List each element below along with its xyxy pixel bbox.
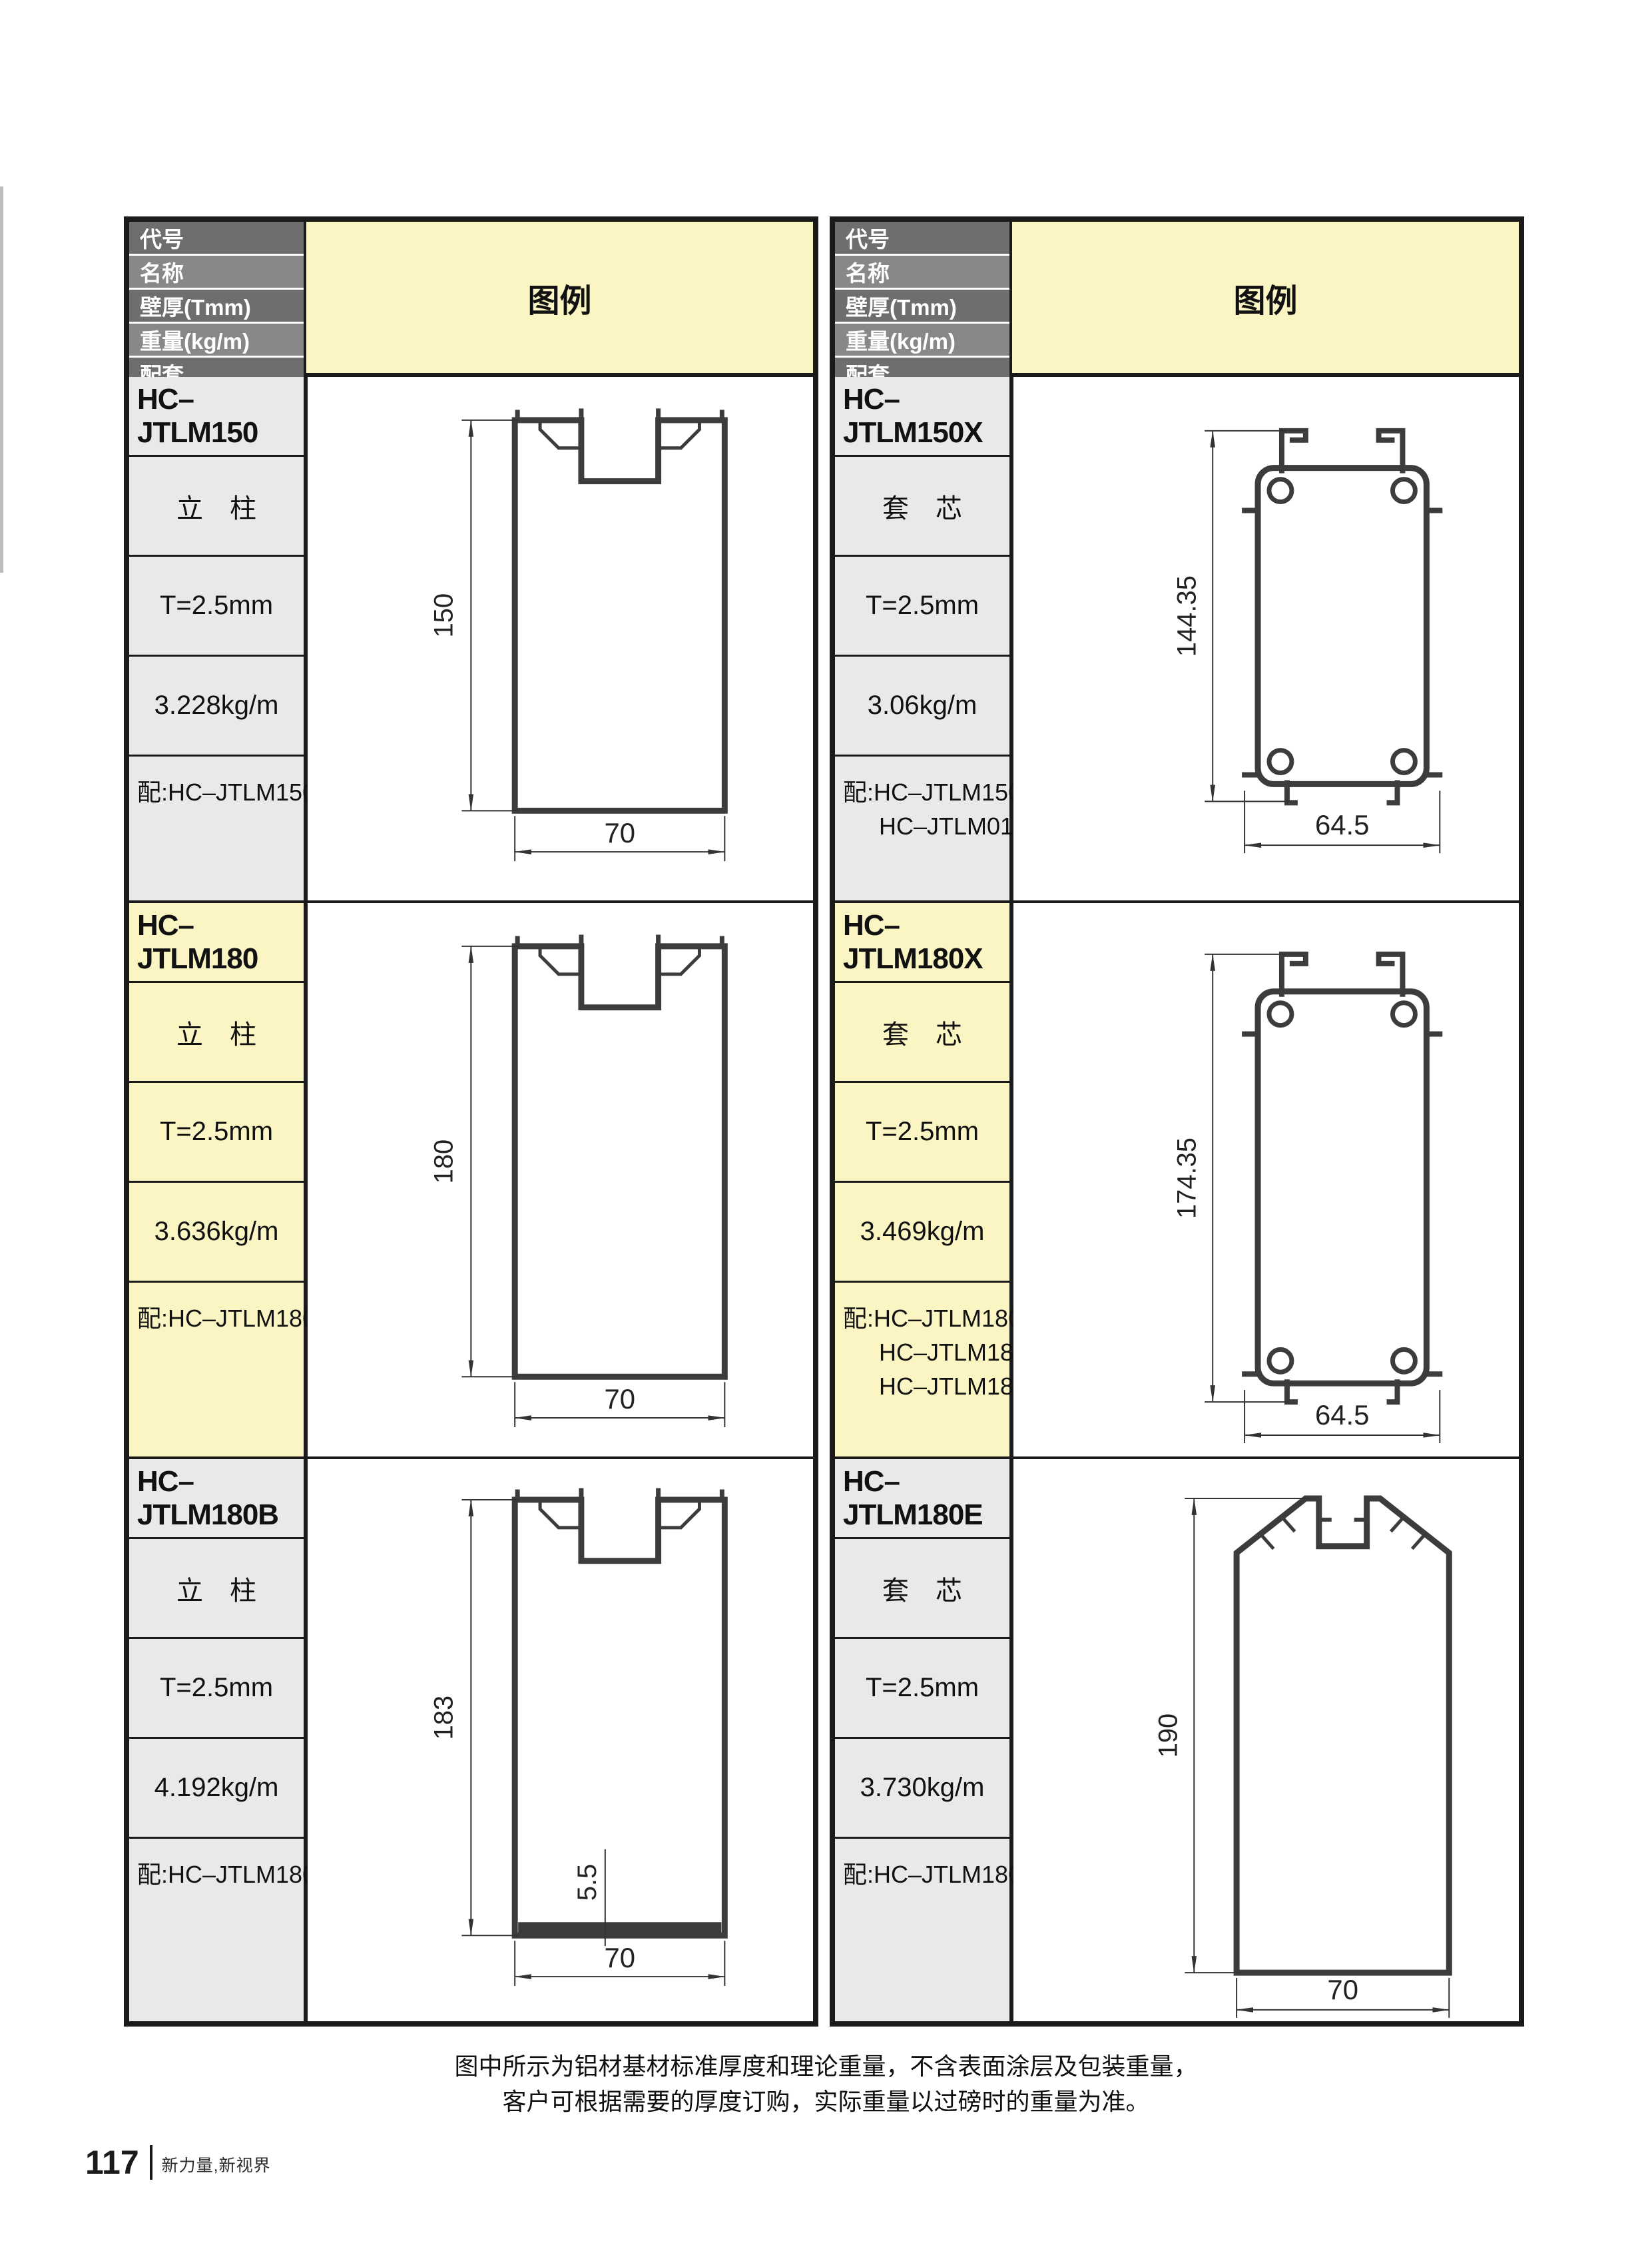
profile-thickness: T=2.5mm xyxy=(835,1083,1009,1183)
header-thickness-label: 壁厚(Tmm) xyxy=(835,290,1009,322)
dim-width-label: 64.5 xyxy=(1315,1399,1370,1431)
page-edge-strip xyxy=(0,186,3,573)
header-thickness-label: 壁厚(Tmm) xyxy=(129,290,304,322)
profile-row-hc-jtlm180e: HC–JTLM180E 套 芯 T=2.5mm 3.730kg/m 配:HC–J… xyxy=(835,1459,1519,2021)
profile-name: 套 芯 xyxy=(835,983,1009,1083)
header-legend-cell: 图例 xyxy=(1009,222,1519,373)
profile-row-hc-jtlm150: HC–JTLM150 立 柱 T=2.5mm 3.228kg/m 配:HC–JT… xyxy=(129,377,813,903)
spec-column: HC–JTLM180B 立 柱 T=2.5mm 4.192kg/m 配:HC–J… xyxy=(129,1459,308,2021)
profile-name: 套 芯 xyxy=(835,1539,1009,1639)
profile-weight: 4.192kg/m xyxy=(129,1739,304,1839)
dim-height-label: 144.35 xyxy=(1172,575,1201,657)
dim-height-label: 183 xyxy=(429,1696,458,1740)
profile-weight: 3.730kg/m xyxy=(835,1739,1009,1839)
weight-disclaimer-note: 图中所示为铝材基材标准厚度和理论重量，不含表面涂层及包装重量， 客户可根据需要的… xyxy=(0,2049,1652,2119)
profile-accessories: 配:HC–JTLM180X xyxy=(129,1839,304,2021)
header-code-label: 代号 xyxy=(835,222,1009,254)
dim-width-label: 70 xyxy=(604,1383,635,1415)
profile-name: 立 柱 xyxy=(129,1539,304,1639)
accessory-line: HC–JTLM017A xyxy=(843,809,1009,843)
accessory-line: 配:HC–JTLM180X xyxy=(137,1857,304,1891)
profile-weight: 3.228kg/m xyxy=(129,657,304,757)
note-line-2: 客户可根据需要的厚度订购，实际重量以过磅时的重量为准。 xyxy=(0,2084,1652,2119)
profile-drawing-mullion-183: 183 5.5 70 xyxy=(308,1459,813,2021)
profile-code: HC–JTLM150X xyxy=(835,377,1009,457)
profile-code: HC–JTLM180X xyxy=(835,903,1009,983)
header-label-column: 代号 名称 壁厚(Tmm) 重量(kg/m) 配套 xyxy=(129,222,304,373)
profile-accessories: 配:HC–JTLM150X xyxy=(129,757,304,900)
profile-thickness: T=2.5mm xyxy=(835,557,1009,657)
profile-code: HC–JTLM180E xyxy=(835,1459,1009,1539)
profile-drawing-mullion-150: 150 70 xyxy=(308,377,813,900)
dim-width-label: 64.5 xyxy=(1315,809,1370,840)
dim-width-label: 70 xyxy=(604,817,635,848)
footer-divider xyxy=(150,2145,152,2180)
spec-column: HC–JTLM150X 套 芯 T=2.5mm 3.06kg/m 配:HC–JT… xyxy=(835,377,1013,900)
drawing-cell: 150 70 xyxy=(308,377,813,900)
spec-column: HC–JTLM180 立 柱 T=2.5mm 3.636kg/m 配:HC–JT… xyxy=(129,903,308,1456)
header-name-label: 名称 xyxy=(129,256,304,288)
profile-drawing-mullion-180: 180 70 xyxy=(308,903,813,1456)
profile-code: HC–JTLM180B xyxy=(129,1459,304,1539)
dim-height-label: 174.35 xyxy=(1172,1137,1201,1219)
page-number: 117 xyxy=(85,2143,139,2182)
profile-accessories: 配:HC–JTLM180X xyxy=(129,1283,304,1456)
accessory-line: HC–JTLM180E xyxy=(843,1369,1009,1403)
accessory-line: 配:HC–JTLM150 xyxy=(843,775,1009,809)
spec-column: HC–JTLM180X 套 芯 T=2.5mm 3.469kg/m 配:HC–J… xyxy=(835,903,1013,1456)
header-name-label: 名称 xyxy=(835,256,1009,288)
drawing-cell: 190 70 xyxy=(1013,1459,1519,2021)
profile-thickness: T=2.5mm xyxy=(129,1639,304,1739)
header-label-column: 代号 名称 壁厚(Tmm) 重量(kg/m) 配套 xyxy=(835,222,1009,373)
dim-height-label: 190 xyxy=(1153,1714,1183,1758)
profile-row-hc-jtlm180: HC–JTLM180 立 柱 T=2.5mm 3.636kg/m 配:HC–JT… xyxy=(129,903,813,1459)
profile-name: 立 柱 xyxy=(129,983,304,1083)
accessory-line: 配:HC–JTLM180 xyxy=(843,1301,1009,1335)
profile-row-hc-jtlm180x: HC–JTLM180X 套 芯 T=2.5mm 3.469kg/m 配:HC–J… xyxy=(835,903,1519,1459)
profile-weight: 3.636kg/m xyxy=(129,1183,304,1283)
drawing-cell: 180 70 xyxy=(308,903,813,1456)
header-code-label: 代号 xyxy=(129,222,304,254)
drawing-cell: 174.35 64.5 xyxy=(1013,903,1519,1456)
profile-row-hc-jtlm150x: HC–JTLM150X 套 芯 T=2.5mm 3.06kg/m 配:HC–JT… xyxy=(835,377,1519,903)
accessory-line: 配:HC–JTLM150X xyxy=(137,775,304,809)
accessory-line: 配:HC–JTLM180X xyxy=(843,1857,1009,1891)
accessory-line: HC–JTLM180B xyxy=(843,1335,1009,1369)
table-header-left: 代号 名称 壁厚(Tmm) 重量(kg/m) 配套 图例 xyxy=(129,222,813,377)
dim-height-label: 150 xyxy=(429,593,458,638)
spec-column: HC–JTLM150 立 柱 T=2.5mm 3.228kg/m 配:HC–JT… xyxy=(129,377,308,900)
profile-name: 套 芯 xyxy=(835,457,1009,557)
profile-weight: 3.06kg/m xyxy=(835,657,1009,757)
profile-drawing-sleeve-14435: 144.35 64.5 xyxy=(1013,377,1519,900)
spec-column: HC–JTLM180E 套 芯 T=2.5mm 3.730kg/m 配:HC–J… xyxy=(835,1459,1013,2021)
profile-accessories: 配:HC–JTLM180X xyxy=(835,1839,1009,2021)
drawing-cell: 144.35 64.5 xyxy=(1013,377,1519,900)
profile-drawing-cap-190: 190 70 xyxy=(1013,1459,1519,2021)
header-weight-label: 重量(kg/m) xyxy=(835,324,1009,356)
dim-width-label: 70 xyxy=(1327,1974,1358,2005)
profile-thickness: T=2.5mm xyxy=(129,1083,304,1183)
profile-thickness: T=2.5mm xyxy=(835,1639,1009,1739)
profile-code: HC–JTLM180 xyxy=(129,903,304,983)
footer-slogan: 新力量,新视界 xyxy=(162,2148,271,2176)
profile-weight: 3.469kg/m xyxy=(835,1183,1009,1283)
profile-accessories: 配:HC–JTLM150 HC–JTLM017A xyxy=(835,757,1009,900)
drawing-cell: 183 5.5 70 xyxy=(308,1459,813,2021)
profile-row-hc-jtlm180b: HC–JTLM180B 立 柱 T=2.5mm 4.192kg/m 配:HC–J… xyxy=(129,1459,813,2021)
note-line-1: 图中所示为铝材基材标准厚度和理论重量，不含表面涂层及包装重量， xyxy=(0,2049,1652,2084)
dim-width-label: 70 xyxy=(604,1942,635,1973)
profile-drawing-sleeve-17435: 174.35 64.5 xyxy=(1013,903,1519,1456)
profile-code: HC–JTLM150 xyxy=(129,377,304,457)
profile-table-left: 代号 名称 壁厚(Tmm) 重量(kg/m) 配套 图例 HC–JTLM150 … xyxy=(124,216,818,2027)
profile-thickness: T=2.5mm xyxy=(129,557,304,657)
accessory-line: 配:HC–JTLM180X xyxy=(137,1301,304,1335)
dim-height-label: 180 xyxy=(429,1139,458,1184)
table-header-right: 代号 名称 壁厚(Tmm) 重量(kg/m) 配套 图例 xyxy=(835,222,1519,377)
catalog-page: 代号 名称 壁厚(Tmm) 重量(kg/m) 配套 图例 HC–JTLM150 … xyxy=(0,0,1652,2241)
profile-name: 立 柱 xyxy=(129,457,304,557)
page-footer: 117 新力量,新视界 xyxy=(85,2143,271,2182)
header-weight-label: 重量(kg/m) xyxy=(129,324,304,356)
header-legend-cell: 图例 xyxy=(304,222,813,373)
dim-bottom-wall-label: 5.5 xyxy=(573,1864,602,1901)
profile-accessories: 配:HC–JTLM180 HC–JTLM180B HC–JTLM180E xyxy=(835,1283,1009,1456)
profile-table-right: 代号 名称 壁厚(Tmm) 重量(kg/m) 配套 图例 HC–JTLM150X… xyxy=(830,216,1524,2027)
